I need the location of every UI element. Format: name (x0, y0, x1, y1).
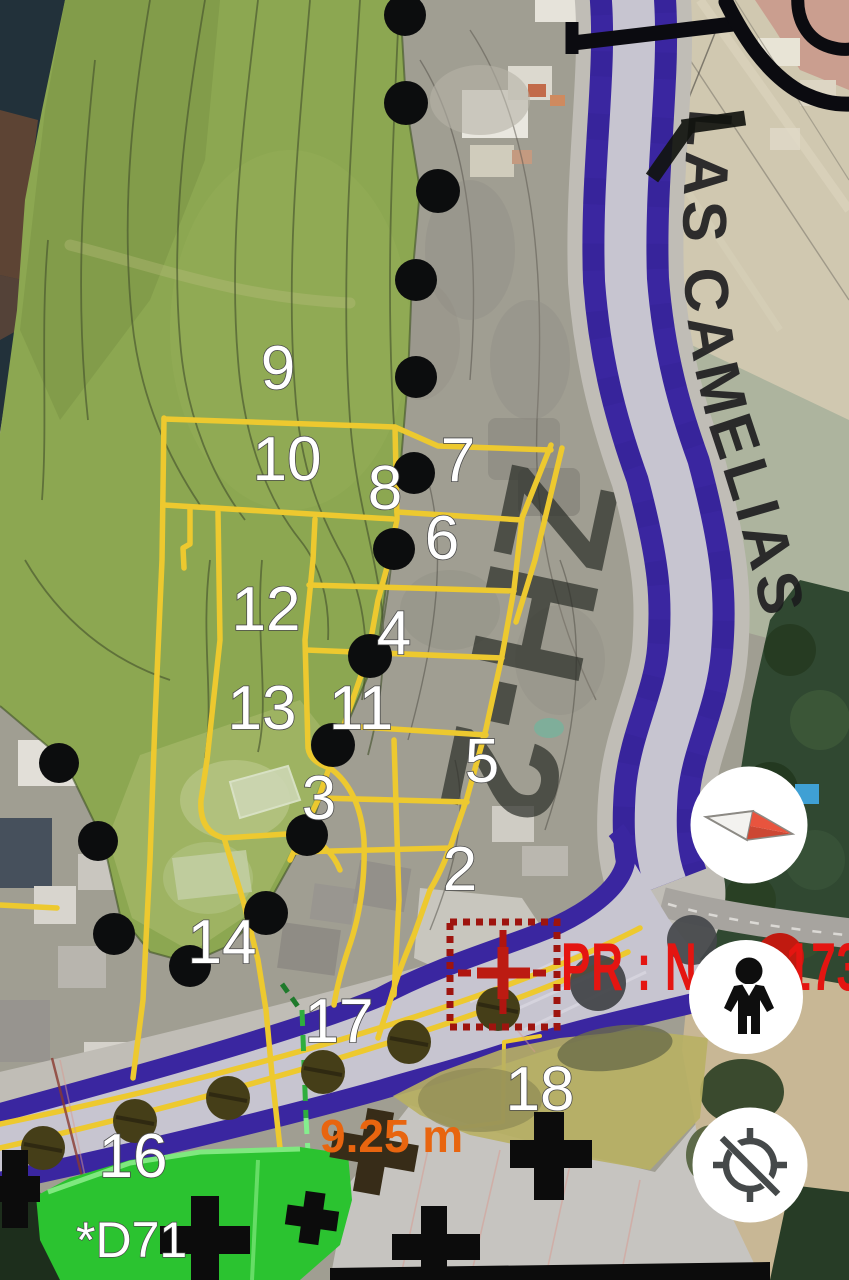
svg-text:16: 16 (99, 1122, 168, 1191)
svg-text:13: 13 (228, 674, 297, 743)
svg-text:*D71: *D71 (76, 1212, 187, 1268)
svg-text:10: 10 (253, 425, 322, 494)
svg-text:2: 2 (443, 835, 477, 904)
svg-text:17: 17 (305, 987, 374, 1056)
svg-text:18: 18 (506, 1055, 575, 1124)
svg-text:3: 3 (302, 764, 336, 833)
svg-text:7: 7 (441, 426, 475, 495)
svg-text:12: 12 (232, 575, 301, 644)
svg-text:11: 11 (329, 674, 393, 743)
svg-text:14: 14 (188, 908, 257, 977)
svg-text:5: 5 (465, 727, 499, 796)
svg-text:9: 9 (261, 334, 295, 403)
svg-text:8: 8 (368, 454, 402, 523)
svg-text:9.25 m: 9.25 m (320, 1110, 463, 1162)
svg-text:6: 6 (425, 504, 459, 573)
svg-text:4: 4 (377, 599, 411, 668)
